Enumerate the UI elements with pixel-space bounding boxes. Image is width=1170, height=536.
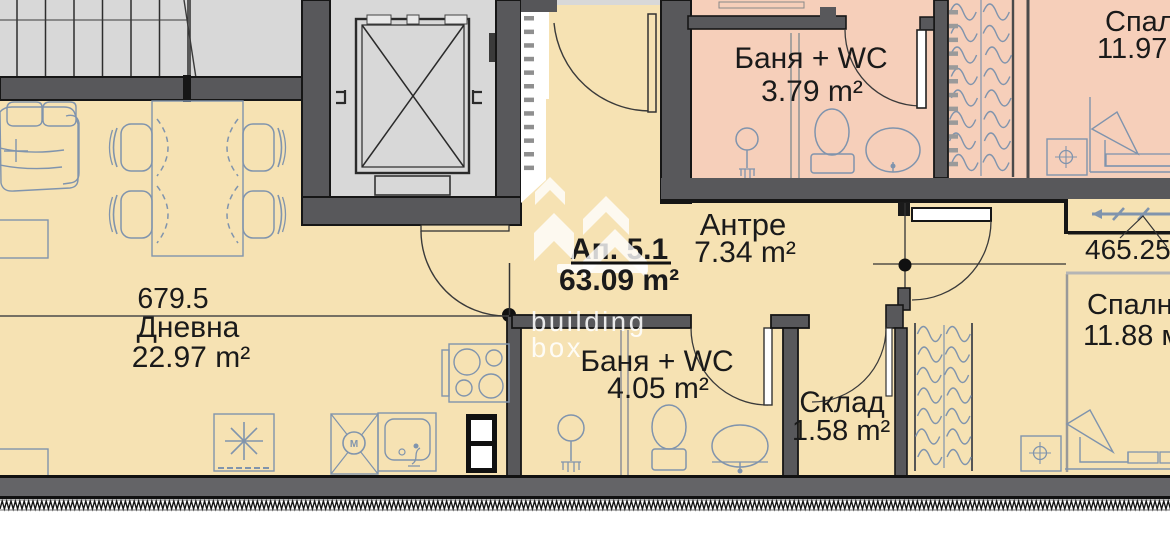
svg-text:Баня + WC: Баня + WC — [734, 42, 887, 75]
svg-text:11.97 м²: 11.97 м² — [1097, 33, 1170, 65]
svg-text:Спалня: Спалня — [1087, 289, 1170, 321]
svg-text:1.58 m²: 1.58 m² — [792, 415, 891, 447]
svg-text:22.97 m²: 22.97 m² — [132, 341, 250, 374]
svg-text:63.09 m²: 63.09 m² — [559, 264, 679, 297]
svg-text:M: M — [350, 439, 358, 450]
svg-text:4.05 m²: 4.05 m² — [607, 372, 709, 405]
svg-text:Дневна: Дневна — [137, 311, 240, 344]
svg-text:box: box — [531, 332, 583, 363]
svg-text:11.88 м²: 11.88 м² — [1083, 320, 1170, 352]
svg-text:7.34 m²: 7.34 m² — [694, 236, 796, 269]
svg-text:465.25: 465.25 — [1085, 234, 1170, 265]
svg-text:3.79 m²: 3.79 m² — [761, 75, 863, 108]
